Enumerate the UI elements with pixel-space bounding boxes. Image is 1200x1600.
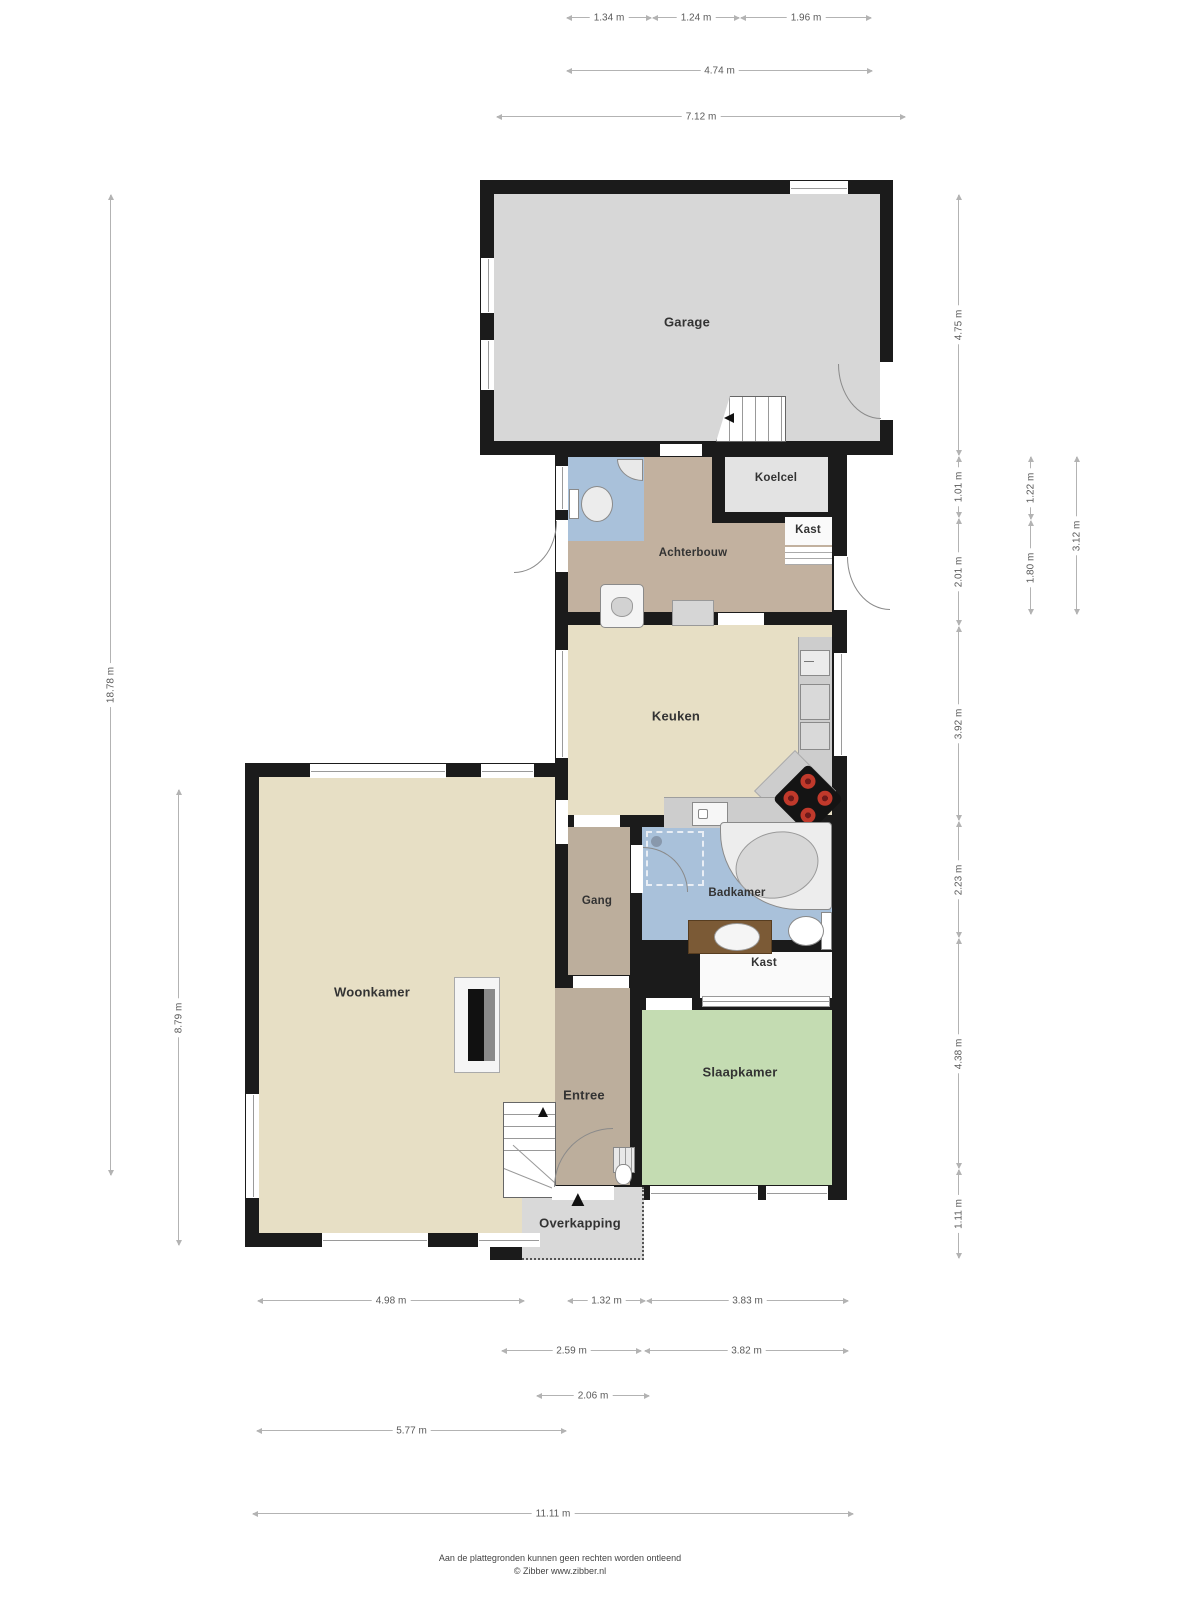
stairs-icon (503, 1102, 556, 1198)
toilet-icon (581, 486, 613, 522)
room-label-achterbouw: Achterbouw (659, 547, 727, 559)
window (481, 764, 534, 778)
kitchen-sink-icon (800, 650, 830, 676)
burner-icon (797, 771, 818, 792)
dimension-label: 3.12 m (1072, 516, 1083, 555)
faucet-icon (804, 661, 814, 662)
burner-icon (780, 788, 801, 809)
room-label-entree: Entree (563, 1088, 605, 1103)
dimension-line: 1.22 m (1030, 457, 1031, 519)
window (481, 340, 494, 390)
door-swing-arc (514, 521, 557, 573)
door-opening (631, 845, 643, 893)
dimension-label: 7.12 m (682, 112, 721, 123)
fireplace-insert (468, 989, 484, 1061)
dial-icon (698, 809, 708, 819)
dimension-label: 2.23 m (954, 860, 965, 899)
shower-head-icon (651, 836, 662, 847)
window (556, 466, 568, 510)
dimension-line: 3.83 m (647, 1300, 848, 1301)
room-label-kast-slaapkamer: Kast (751, 957, 777, 969)
window (834, 653, 847, 756)
dimension-line: 5.77 m (257, 1430, 566, 1431)
entrance-arrow-icon: ▲ (567, 1188, 589, 1210)
fireplace-panel (484, 989, 495, 1061)
room-koelcel (725, 457, 828, 512)
room-slaapkamer (642, 1010, 832, 1185)
dimension-label: 1.96 m (787, 13, 826, 24)
dimension-line: 4.74 m (567, 70, 872, 71)
dimension-line: 2.06 m (537, 1395, 649, 1396)
window (481, 258, 494, 313)
dimension-line: 1.80 m (1030, 521, 1031, 614)
burner-icon (814, 788, 835, 809)
toilet-icon (569, 489, 579, 519)
dimension-line: 7.12 m (497, 116, 905, 117)
door-swing-arc (847, 557, 890, 610)
footer-disclaimer: Aan de plattegronden kunnen geen rechten… (260, 1552, 860, 1565)
dimension-label: 1.01 m (954, 468, 965, 507)
door-opening (556, 800, 568, 844)
washing-machine-icon (600, 584, 644, 628)
room-label-overkapping: Overkapping (539, 1216, 621, 1231)
fridge-icon (800, 722, 830, 750)
dryer-icon (672, 600, 714, 626)
window (478, 1233, 540, 1247)
window (790, 181, 848, 194)
window (556, 650, 568, 758)
dimension-line: 3.82 m (645, 1350, 848, 1351)
dimension-line: 11.11 m (253, 1513, 853, 1514)
dimension-label: 1.34 m (590, 13, 629, 24)
drum-icon (611, 597, 633, 617)
dimension-line: 1.96 m (741, 17, 871, 18)
door-opening (556, 520, 568, 572)
door-opening (573, 976, 629, 988)
room-label-keuken: Keuken (652, 709, 700, 724)
door-opening (646, 998, 692, 1010)
dimension-line: 1.11 m (958, 1170, 959, 1258)
dimension-line: 1.24 m (653, 17, 739, 18)
door-opening (660, 444, 702, 456)
toilet-icon (788, 916, 824, 946)
dimension-line: 1.01 m (958, 457, 959, 517)
room-label-garage: Garage (664, 315, 710, 330)
dimension-line: 1.34 m (567, 17, 651, 18)
dimension-label: 5.77 m (392, 1426, 431, 1437)
dimension-label: 4.75 m (954, 306, 965, 345)
dimension-line: 2.23 m (958, 822, 959, 937)
door-opening (834, 556, 847, 610)
closet-shelves (785, 547, 832, 565)
dimension-line: 4.38 m (958, 939, 959, 1168)
stairs-arrow-icon (538, 1107, 548, 1117)
room-label-badkamer: Badkamer (708, 887, 765, 899)
door-opening (718, 613, 764, 625)
stair-winder-line (503, 1166, 556, 1195)
dimension-label: 3.82 m (727, 1346, 766, 1357)
dimension-line: 18.78 m (110, 195, 111, 1175)
dimension-label: 1.80 m (1026, 548, 1037, 587)
stairs-arrow-icon (724, 413, 734, 423)
window (310, 764, 446, 778)
sliding-door (702, 996, 830, 1007)
room-label-kast-achterbouw: Kast (795, 524, 821, 536)
dimension-label: 4.74 m (700, 66, 739, 77)
window (766, 1186, 828, 1200)
room-label-gang: Gang (582, 895, 612, 907)
dimension-label: 2.06 m (574, 1391, 613, 1402)
dimension-label: 2.01 m (954, 553, 965, 592)
dimension-line: 1.32 m (568, 1300, 645, 1301)
door-opening (574, 815, 620, 827)
dimension-label: 3.92 m (954, 704, 965, 743)
dimension-line: 3.92 m (958, 627, 959, 820)
dimension-label: 1.24 m (677, 13, 716, 24)
door-opening (880, 362, 893, 420)
room-label-koelcel: Koelcel (755, 472, 797, 484)
dimension-label: 11.11 m (532, 1509, 575, 1520)
dimension-line: 3.12 m (1076, 457, 1077, 614)
dimension-label: 1.22 m (1026, 469, 1037, 508)
dimension-line: 2.59 m (502, 1350, 641, 1351)
window (650, 1186, 758, 1200)
dimension-label: 3.83 m (728, 1296, 767, 1307)
dimension-label: 8.79 m (174, 998, 185, 1037)
fireplace-icon (454, 977, 500, 1073)
washbasin-icon (714, 923, 760, 951)
window (246, 1094, 259, 1198)
dimension-line: 2.01 m (958, 519, 959, 625)
dimension-label: 4.38 m (954, 1034, 965, 1073)
dimension-label: 2.59 m (552, 1346, 591, 1357)
dimension-label: 1.11 m (954, 1195, 965, 1233)
fridge-icon (800, 684, 830, 720)
dimension-label: 18.78 m (106, 663, 117, 707)
floorplan-canvas: ▲ Garage Koelcel Kast Achterbouw Keuken … (0, 0, 1200, 1600)
window (322, 1233, 428, 1247)
dimension-line: 4.75 m (958, 195, 959, 455)
dimension-line: 8.79 m (178, 790, 179, 1245)
dimension-label: 1.32 m (587, 1296, 626, 1307)
dimension-line: 4.98 m (258, 1300, 524, 1301)
room-label-woonkamer: Woonkamer (334, 985, 410, 1000)
footer: Aan de plattegronden kunnen geen rechten… (260, 1552, 860, 1578)
toilet-icon (615, 1164, 632, 1185)
dimension-label: 4.98 m (372, 1296, 411, 1307)
footer-credit: © Zibber www.zibber.nl (260, 1565, 860, 1578)
room-label-slaapkamer: Slaapkamer (703, 1065, 778, 1080)
